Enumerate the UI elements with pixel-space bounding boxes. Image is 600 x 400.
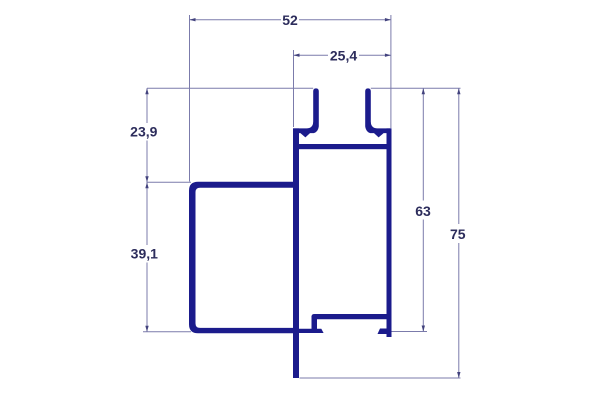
svg-text:25,4: 25,4	[330, 47, 357, 63]
svg-text:52: 52	[282, 12, 298, 28]
svg-text:23,9: 23,9	[130, 123, 157, 139]
svg-text:63: 63	[415, 203, 431, 219]
svg-text:75: 75	[450, 226, 466, 242]
svg-text:39,1: 39,1	[131, 246, 158, 262]
